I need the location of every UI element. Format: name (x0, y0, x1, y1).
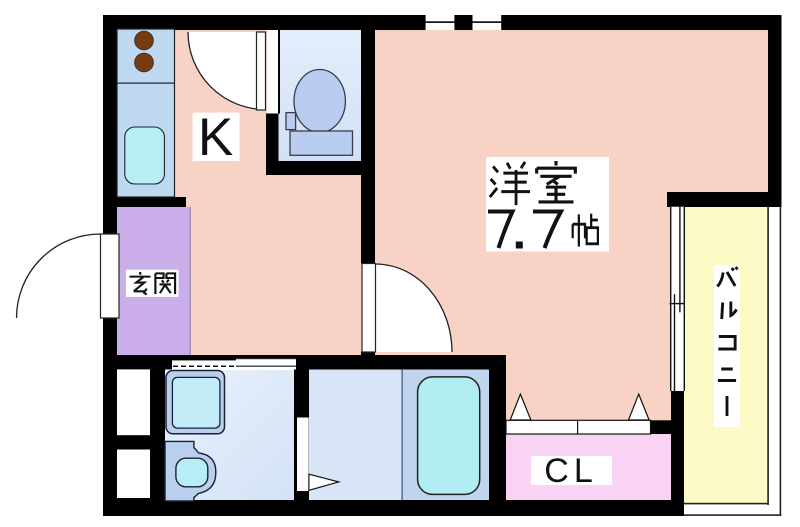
svg-text:K: K (198, 108, 233, 167)
svg-text:CL: CL (544, 452, 597, 490)
